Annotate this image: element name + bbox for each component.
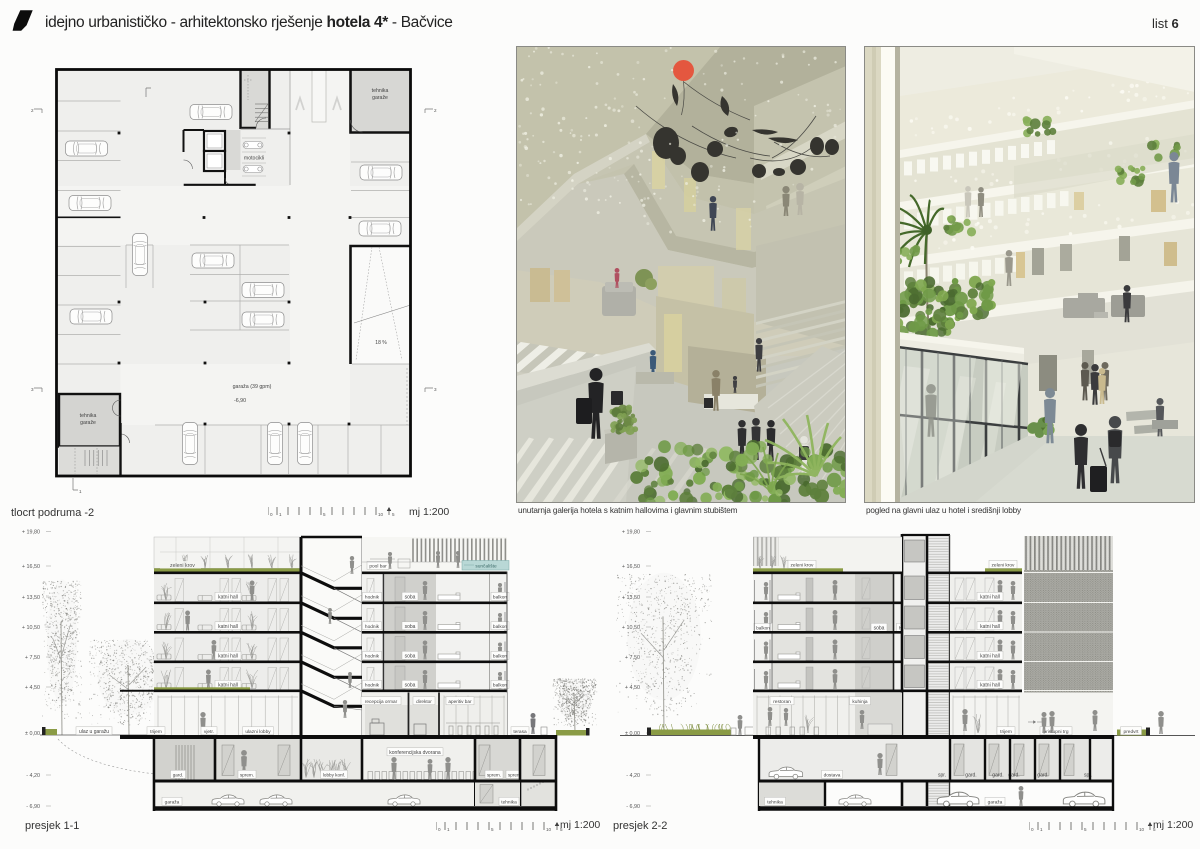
svg-text:2: 2	[31, 108, 34, 113]
svg-text:balkon: balkon	[493, 683, 507, 689]
svg-text:+ 16,50: + 16,50	[22, 564, 40, 570]
svg-text:soba: soba	[405, 683, 416, 689]
svg-text:+ 4,50: + 4,50	[25, 685, 40, 691]
svg-text:katni hall: katni hall	[980, 624, 1000, 630]
svg-text:3: 3	[31, 387, 34, 392]
svg-text:- 4,20: - 4,20	[626, 773, 640, 779]
svg-text:balkon: balkon	[493, 595, 507, 601]
svg-text:ulaz u garažu: ulaz u garažu	[79, 729, 109, 735]
svg-text:5: 5	[491, 827, 494, 832]
svg-text:balkon: balkon	[493, 654, 507, 660]
svg-text:dostava: dostava	[824, 773, 841, 779]
svg-text:sunčalište: sunčalište	[475, 564, 497, 570]
svg-text:aperitiv bar: aperitiv bar	[448, 699, 472, 704]
svg-text:balkon: balkon	[493, 624, 507, 630]
svg-text:tehnika: tehnika	[501, 800, 517, 806]
svg-text:-6,90: -6,90	[234, 398, 246, 404]
svg-text:sprem.: sprem.	[487, 773, 501, 778]
svg-text:hodnik: hodnik	[365, 683, 380, 689]
svg-text:spr.: spr.	[938, 773, 946, 779]
svg-text:+ 7,50: + 7,50	[25, 655, 40, 661]
svg-text:garaža: garaža	[165, 800, 180, 806]
svg-text:garaže: garaže	[372, 95, 388, 101]
svg-text:gard.: gard.	[965, 773, 976, 779]
svg-text:+ 16,50: + 16,50	[622, 564, 640, 570]
svg-text:pristupni trg: pristupni trg	[1043, 729, 1068, 735]
svg-text:+ 4,50: + 4,50	[625, 685, 640, 691]
svg-text:0: 0	[1031, 827, 1034, 832]
svg-text:5: 5	[392, 512, 395, 517]
svg-text:trijem: trijem	[150, 729, 162, 735]
svg-text:konferencijska dvorana: konferencijska dvorana	[389, 750, 441, 756]
svg-text:zeleni krov: zeleni krov	[170, 563, 195, 569]
svg-text:terasa: terasa	[513, 729, 527, 735]
svg-text:- 6,90: - 6,90	[626, 804, 640, 810]
svg-text:gard.: gard.	[1037, 773, 1048, 779]
svg-text:5: 5	[1084, 827, 1087, 832]
svg-text:gard.: gard.	[173, 773, 183, 778]
svg-text:katni hall: katni hall	[980, 595, 1000, 601]
svg-text:± 0,00: ± 0,00	[25, 731, 40, 737]
svg-text:pool bar: pool bar	[369, 564, 387, 570]
svg-text:katni hall: katni hall	[218, 624, 238, 630]
svg-text:+ 10,50: + 10,50	[22, 625, 40, 631]
svg-text:katni hall: katni hall	[218, 654, 238, 660]
svg-text:lobby konf.: lobby konf.	[323, 773, 345, 778]
svg-text:1: 1	[279, 512, 282, 517]
svg-text:soba: soba	[405, 654, 416, 660]
svg-text:18 %: 18 %	[375, 340, 387, 346]
svg-text:gard.: gard.	[992, 773, 1003, 779]
svg-text:0: 0	[438, 827, 441, 832]
svg-text:balkon: balkon	[756, 626, 770, 631]
svg-text:hodnik: hodnik	[365, 595, 380, 601]
svg-text:direktor: direktor	[416, 699, 432, 704]
svg-text:1: 1	[1040, 827, 1043, 832]
svg-text:katni hall: katni hall	[218, 595, 238, 601]
svg-text:tehnika: tehnika	[80, 413, 97, 419]
svg-text:2: 2	[434, 108, 437, 113]
svg-text:10: 10	[546, 827, 552, 832]
svg-text:- 6,90: - 6,90	[26, 804, 40, 810]
svg-text:5: 5	[323, 512, 326, 517]
svg-text:tehnika: tehnika	[767, 800, 783, 806]
svg-text:predvrt: predvrt	[1124, 729, 1140, 735]
svg-text:sprem.: sprem.	[240, 773, 254, 778]
svg-text:vjetr.: vjetr.	[204, 729, 214, 735]
svg-text:- 4,20: - 4,20	[26, 773, 40, 779]
svg-text:soba: soba	[405, 624, 416, 630]
svg-text:soba: soba	[874, 626, 885, 632]
svg-text:0: 0	[270, 512, 273, 517]
svg-text:10: 10	[378, 512, 384, 517]
svg-text:tehnika: tehnika	[372, 88, 389, 94]
svg-text:restoran: restoran	[773, 699, 791, 705]
svg-text:1: 1	[447, 827, 450, 832]
svg-text:trijem: trijem	[1000, 729, 1012, 735]
svg-text:zeleni krov: zeleni krov	[992, 563, 1016, 569]
svg-text:soba: soba	[405, 595, 416, 601]
svg-text:garaže: garaže	[80, 420, 96, 426]
svg-text:10: 10	[1139, 827, 1145, 832]
svg-text:katni hall: katni hall	[980, 683, 1000, 689]
svg-text:motocikli: motocikli	[244, 156, 264, 162]
svg-text:+ 19,80: + 19,80	[622, 530, 640, 536]
svg-text:garaža: garaža	[988, 800, 1003, 806]
svg-text:hodnik: hodnik	[365, 654, 380, 660]
svg-text:± 0,00: ± 0,00	[625, 731, 640, 737]
svg-text:3: 3	[434, 387, 437, 392]
svg-text:hodnik: hodnik	[365, 624, 380, 630]
svg-text:ulazni lobby: ulazni lobby	[245, 729, 271, 735]
svg-text:1: 1	[79, 489, 82, 494]
svg-text:zeleni krov: zeleni krov	[791, 563, 815, 569]
svg-text:recepcija ormar: recepcija ormar	[365, 699, 398, 704]
svg-text:kuhinja: kuhinja	[852, 699, 868, 705]
svg-text:+ 19,80: + 19,80	[22, 530, 40, 536]
svg-text:katni hall: katni hall	[980, 654, 1000, 660]
svg-text:garaža (39 gpm): garaža (39 gpm)	[233, 384, 272, 390]
svg-text:+ 13,50: + 13,50	[22, 595, 40, 601]
